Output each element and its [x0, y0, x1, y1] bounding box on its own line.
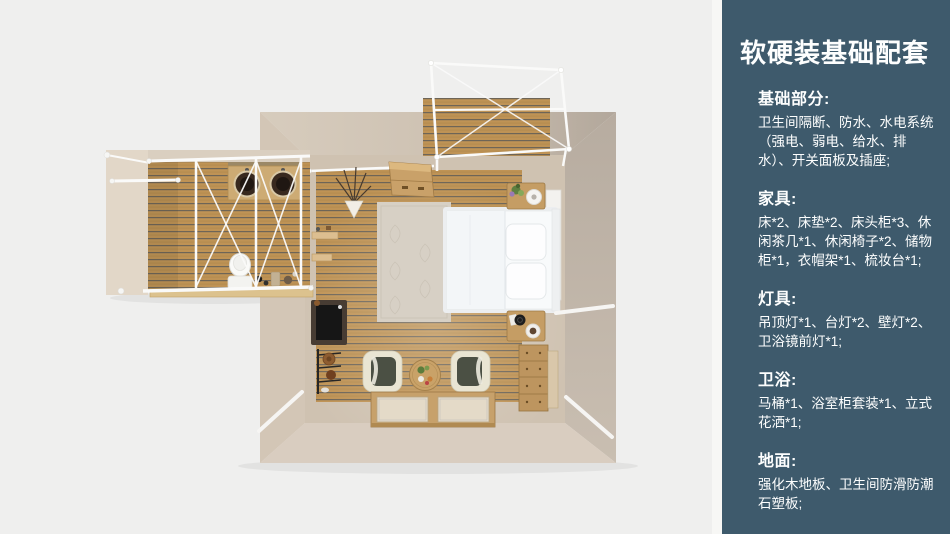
storage-cabinet [389, 162, 434, 197]
slide-canvas: 软硬装基础配套 基础部分: 卫生间隔断、防水、水电系统（强电、弱电、给水、排水）… [0, 0, 950, 534]
side-cabinet [548, 351, 558, 408]
panel-title: 软硬装基础配套 [740, 36, 936, 70]
section-heading: 基础部分: [758, 90, 936, 110]
spec-panel: 软硬装基础配套 基础部分: 卫生间隔断、防水、水电系统（强电、弱电、给水、排水）… [722, 0, 950, 534]
section-furniture: 家具: 床*2、床垫*2、床头柜*3、休闲茶几*1、休闲椅子*2、储物柜*1，衣… [758, 190, 936, 270]
spec-sections: 基础部分: 卫生间隔断、防水、水电系统（强电、弱电、给水、排水）、开关面板及插座… [758, 90, 936, 513]
section-body: 床*2、床垫*2、床头柜*3、休闲茶几*1、休闲椅子*2、储物柜*1，衣帽架*1… [758, 213, 936, 270]
lounge-chair-right [451, 351, 490, 392]
floorplan-render [0, 0, 722, 534]
section-body: 吊顶灯*1、台灯*2、壁灯*2、卫浴镜前灯*1; [758, 313, 936, 351]
section-bathroom: 卫浴: 马桶*1、浴室柜套装*1、立式花洒*1; [758, 371, 936, 432]
towel-bar [112, 180, 178, 181]
table-lamp [526, 324, 540, 338]
bathroom-wing [104, 150, 314, 297]
nightstand-top [507, 183, 545, 209]
section-heading: 地面: [758, 452, 936, 472]
coffee-table [410, 360, 441, 391]
headboard [552, 209, 560, 311]
balcony-deck [423, 98, 550, 156]
lounge-chair-left [363, 351, 402, 392]
section-body: 卫生间隔断、防水、水电系统（强电、弱电、给水、排水）、开关面板及插座; [758, 113, 936, 170]
section-heading: 灯具: [758, 290, 936, 310]
area-rug [377, 202, 451, 322]
table-lamp [527, 190, 542, 205]
section-basics: 基础部分: 卫生间隔断、防水、水电系统（强电、弱电、给水、排水）、开关面板及插座… [758, 90, 936, 170]
section-heading: 卫浴: [758, 371, 936, 391]
double-bed [443, 207, 560, 313]
section-body: 强化木地板、卫生间防滑防潮石塑板; [758, 475, 936, 513]
section-body: 马桶*1、浴室柜套装*1、立式花洒*1; [758, 394, 936, 432]
panel-divider [712, 0, 722, 534]
writing-desk [311, 300, 347, 345]
section-flooring: 地面: 强化木地板、卫生间防滑防潮石塑板; [758, 452, 936, 513]
section-lighting: 灯具: 吊顶灯*1、台灯*2、壁灯*2、卫浴镜前灯*1; [758, 290, 936, 351]
dresser [519, 345, 558, 411]
double-sink-counter [228, 162, 302, 200]
pillow [506, 224, 546, 260]
nightstand-bottom [507, 311, 545, 341]
section-heading: 家具: [758, 190, 936, 210]
pillow [506, 263, 546, 299]
floor-windows [371, 392, 495, 427]
